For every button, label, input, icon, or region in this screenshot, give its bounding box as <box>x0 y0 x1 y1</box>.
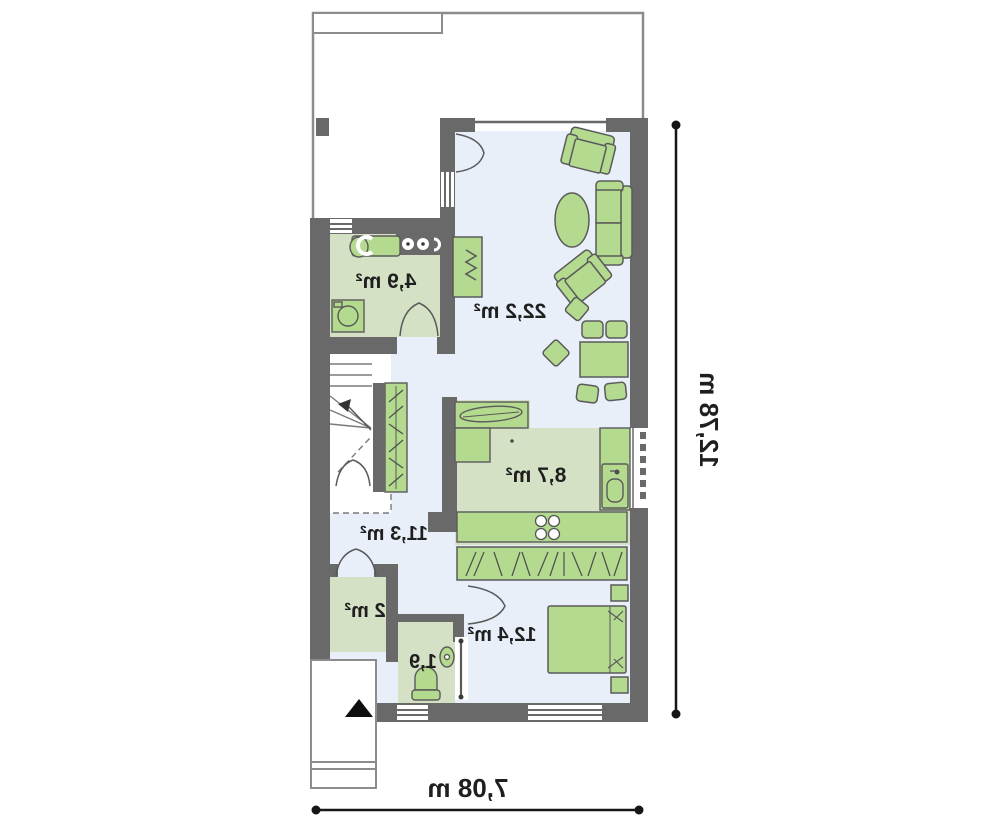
dining-chair <box>604 382 627 401</box>
washing-machine <box>332 300 364 332</box>
width-dimension-label: 7,08 m <box>428 773 509 803</box>
wc-washbasin <box>440 647 454 667</box>
wc-sliding-door <box>455 637 468 700</box>
nightstand <box>611 677 628 693</box>
double-bed <box>548 606 626 673</box>
height-dimension: 12,78 m <box>672 121 725 719</box>
entrance-porch <box>311 660 376 788</box>
bedroom-area-label: 12,4 m² <box>467 624 536 646</box>
floor-plan-canvas: 4,9 m² 22,2 m² 8,7 m² 11,3 m² 2 m² 1,9 1… <box>0 0 1000 823</box>
wc-area-label: 1,9 <box>409 651 437 673</box>
kitchen-sink <box>602 464 628 508</box>
floor-plan-page: 4,9 m² 22,2 m² 8,7 m² 11,3 m² 2 m² 1,9 1… <box>0 0 1000 823</box>
dining-table <box>580 342 628 377</box>
washbasin <box>350 236 400 257</box>
kitchen-area-label: 8,7 m² <box>506 464 567 487</box>
wc-window <box>397 705 428 720</box>
fence-post <box>316 118 329 136</box>
hall-sidelight-window <box>441 172 454 207</box>
dining-chair <box>582 321 603 338</box>
hall-wardrobe <box>385 383 407 492</box>
living-room-area-label: 22,2 m² <box>474 300 546 323</box>
hallway-area-label: 11,3 m² <box>360 523 428 545</box>
sofa <box>596 181 632 265</box>
fireplace <box>453 237 482 297</box>
nightstand <box>611 585 628 601</box>
coffee-table <box>555 193 589 247</box>
height-dimension-label: 12,78 m <box>694 372 724 467</box>
dining-chair <box>606 321 627 338</box>
dining-chair <box>576 384 599 404</box>
bedroom-wardrobe <box>457 547 627 580</box>
closet-area-label: 2 m² <box>344 600 385 622</box>
bedroom-window <box>528 705 602 720</box>
bathroom-area-label: 4,9 m² <box>356 270 417 293</box>
fridge <box>455 428 490 462</box>
kitchen-window-radiator <box>630 428 648 508</box>
bathroom-window <box>330 219 352 233</box>
